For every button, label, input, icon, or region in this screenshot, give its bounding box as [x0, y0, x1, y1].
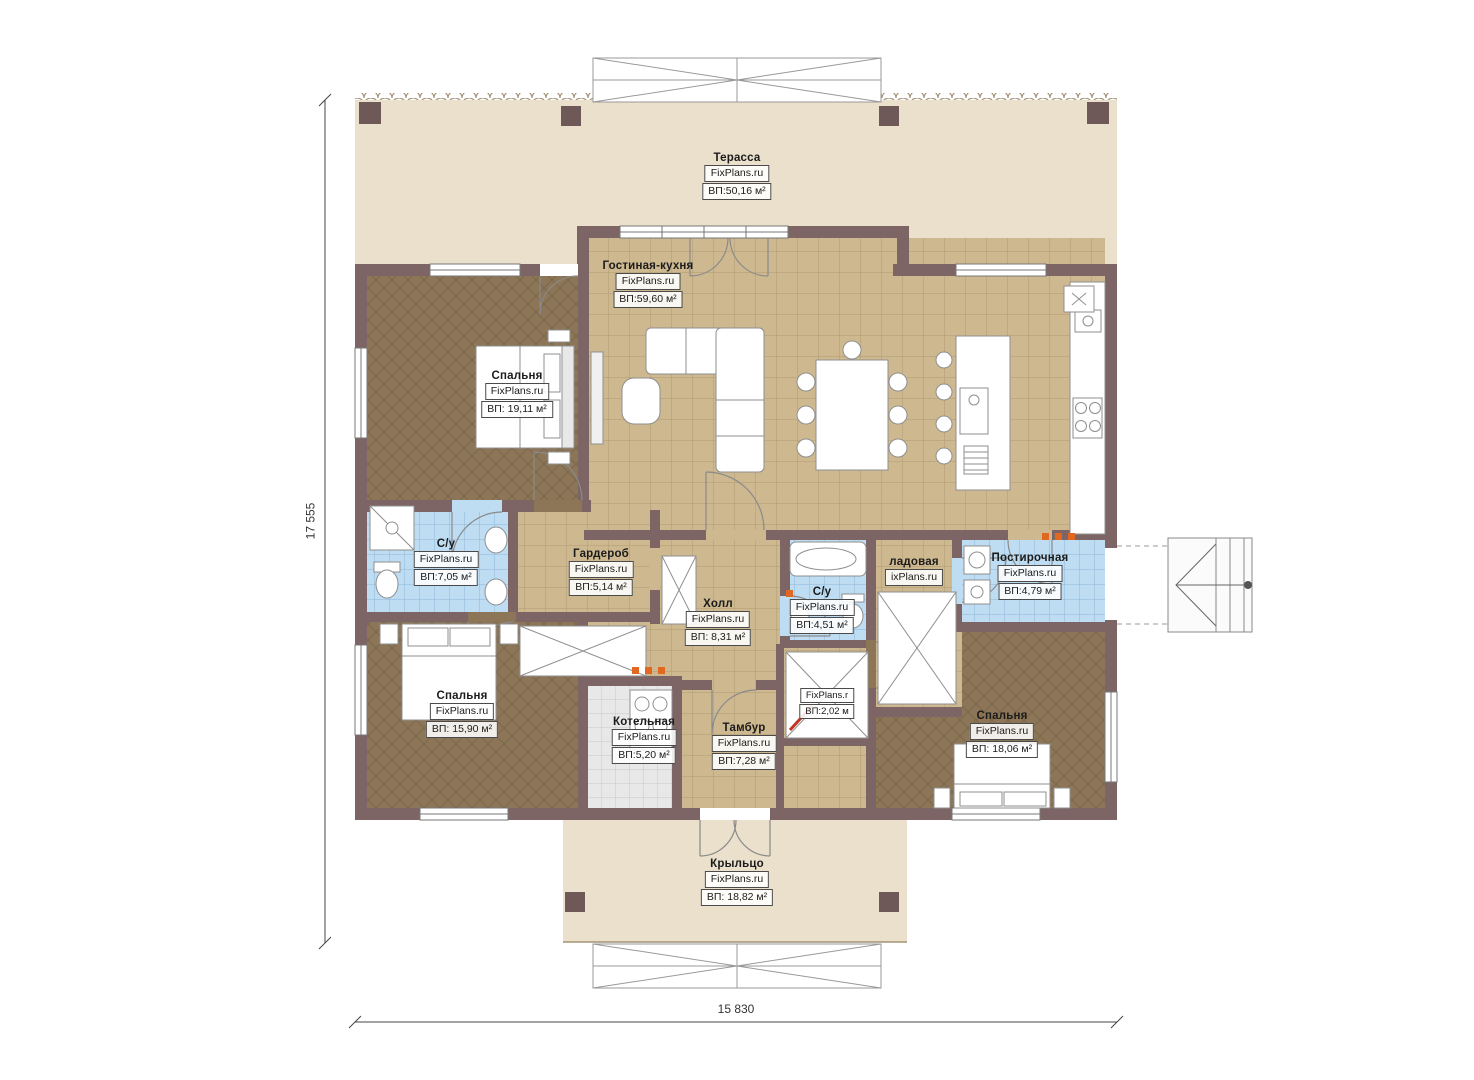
watermark: FixPlans.ru — [616, 273, 681, 290]
room-name: Котельная — [613, 716, 675, 728]
room-area: ВП: 19,11 м² — [481, 401, 553, 418]
watermark: FixPlans.r — [800, 688, 854, 703]
room-name: Гардероб — [573, 548, 629, 560]
room-area: ВП:5,20 м² — [612, 747, 676, 764]
room-label-tambur: Тамбур FixPlans.ru ВП:7,28 м² — [712, 722, 777, 770]
side-stairs — [1117, 538, 1252, 632]
room-area: ВП:4,79 м² — [998, 583, 1062, 600]
room-label-bedroom3: Спальня FixPlans.ru ВП: 18,06 м² — [966, 710, 1038, 758]
room-label-closet: FixPlans.r ВП:2,02 м — [799, 688, 854, 719]
room-name: Крыльцо — [710, 858, 764, 870]
room-area: ВП:59,60 м² — [613, 291, 682, 308]
room-label-bedroom1: Спальня FixPlans.ru ВП: 19,11 м² — [481, 370, 553, 418]
watermark: FixPlans.ru — [430, 703, 495, 720]
tv-bench — [591, 352, 603, 444]
bottom-stairs — [593, 944, 881, 988]
room-label-wardrobe: Гардероб FixPlans.ru ВП:5,14 м² — [569, 548, 634, 596]
watermark: FixPlans.ru — [612, 729, 677, 746]
watermark: FixPlans.ru — [485, 383, 550, 400]
room-area: ВП:4,51 м² — [790, 617, 854, 634]
room-area: ВП: 15,90 м² — [426, 721, 498, 738]
room-area: ВП:5,14 м² — [569, 579, 633, 596]
room-name: С/у — [437, 538, 456, 550]
room-label-pantry: ладовая ixPlans.ru — [885, 556, 943, 586]
room-name: Гостиная-кухня — [603, 260, 694, 272]
dimension-width: 15 830 — [718, 1002, 755, 1016]
room-label-laundry: Постирочная FixPlans.ru ВП:4,79 м² — [992, 552, 1069, 600]
room-label-boiler: Котельная FixPlans.ru ВП:5,20 м² — [612, 716, 677, 764]
room-name: Спальня — [976, 710, 1027, 722]
room-name: Постирочная — [992, 552, 1069, 564]
watermark: FixPlans.ru — [790, 599, 855, 616]
room-name: Терасса — [713, 152, 760, 164]
coffee-table — [622, 378, 660, 424]
watermark: FixPlans.ru — [569, 561, 634, 578]
room-name: Спальня — [491, 370, 542, 382]
room-label-bath1: С/у FixPlans.ru ВП:7,05 м² — [414, 538, 479, 586]
watermark: FixPlans.ru — [414, 551, 479, 568]
room-label-bedroom2: Спальня FixPlans.ru ВП: 15,90 м² — [426, 690, 498, 738]
kitchen-counter — [1070, 282, 1105, 534]
room-label-porch: Крыльцо FixPlans.ru ВП: 18,82 м² — [701, 858, 773, 906]
room-area: ВП:7,05 м² — [414, 569, 478, 586]
watermark: ixPlans.ru — [885, 569, 943, 586]
dimension-height: 17 555 — [303, 503, 317, 540]
vent-fan — [1064, 286, 1094, 312]
room-name: Спальня — [436, 690, 487, 702]
watermark: FixPlans.ru — [998, 565, 1063, 582]
top-stairs — [593, 58, 881, 102]
room-label-living: Гостиная-кухня FixPlans.ru ВП:59,60 м² — [603, 260, 694, 308]
room-area: ВП: 8,31 м² — [685, 629, 751, 646]
watermark: FixPlans.ru — [970, 723, 1035, 740]
watermark: FixPlans.ru — [686, 611, 751, 628]
watermark: FixPlans.ru — [705, 871, 770, 888]
floor-plan-page: Терасса FixPlans.ru ВП:50,16 м² Гостиная… — [0, 0, 1474, 1080]
watermark: FixPlans.ru — [712, 735, 777, 752]
room-name: Тамбур — [723, 722, 766, 734]
room-area: ВП: 18,06 м² — [966, 741, 1038, 758]
room-label-bath2: С/у FixPlans.ru ВП:4,51 м² — [790, 586, 855, 634]
room-name: С/у — [813, 586, 832, 598]
room-area: ВП:7,28 м² — [712, 753, 776, 770]
room-area: ВП:2,02 м — [799, 704, 854, 719]
room-area: ВП:50,16 м² — [702, 183, 771, 200]
room-label-hall: Холл FixPlans.ru ВП: 8,31 м² — [685, 598, 751, 646]
room-label-terrace: Терасса FixPlans.ru ВП:50,16 м² — [702, 152, 771, 200]
room-area: ВП: 18,82 м² — [701, 889, 773, 906]
room-name: Холл — [703, 598, 733, 610]
room-name: ладовая — [889, 556, 938, 568]
watermark: FixPlans.ru — [705, 165, 770, 182]
